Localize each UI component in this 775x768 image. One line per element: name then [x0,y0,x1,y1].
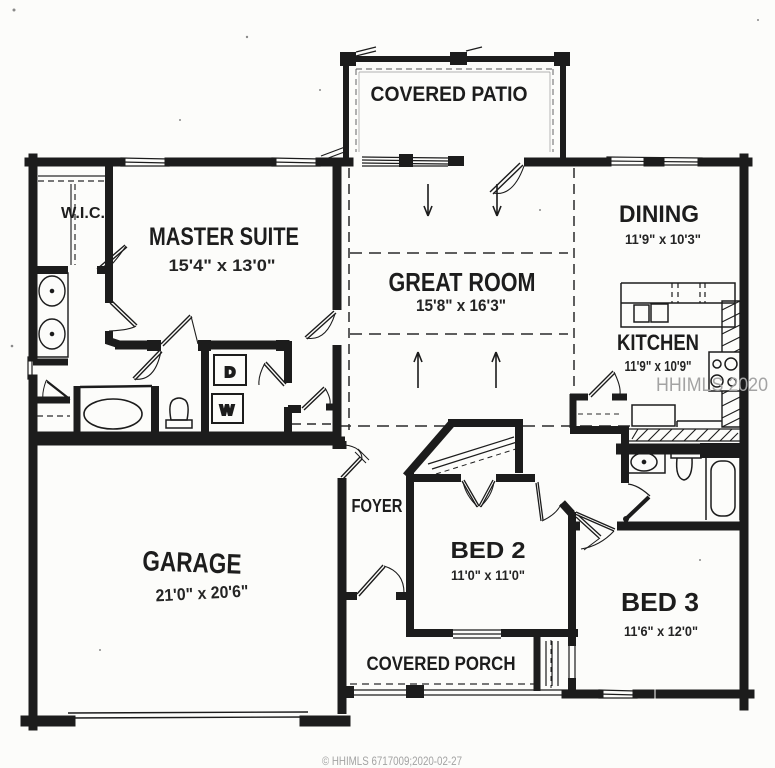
svg-text:FOYER: FOYER [352,496,403,516]
svg-text:BED 2: BED 2 [451,537,526,563]
svg-text:11'6" x 12'0": 11'6" x 12'0" [624,623,698,639]
svg-text:MASTER SUITE: MASTER SUITE [149,223,299,251]
svg-text:15'4" x 13'0": 15'4" x 13'0" [169,256,276,275]
svg-text:HHIMLS 2020: HHIMLS 2020 [656,375,768,396]
svg-text:KITCHEN: KITCHEN [617,330,699,355]
svg-text:DINING: DINING [619,201,699,228]
svg-text:W.I.C.: W.I.C. [61,205,105,222]
svg-text:W: W [220,402,235,419]
svg-text:© HHIMLS 6717009;2020-02-27: © HHIMLS 6717009;2020-02-27 [322,754,462,768]
svg-text:BED 3: BED 3 [621,587,699,617]
svg-text:GREAT ROOM: GREAT ROOM [389,267,536,297]
svg-text:11'0" x 11'0": 11'0" x 11'0" [451,567,525,583]
svg-text:COVERED PORCH: COVERED PORCH [367,654,516,675]
svg-text:11'9" x 10'3": 11'9" x 10'3" [625,231,701,247]
svg-text:GARAGE: GARAGE [142,545,242,579]
svg-text:COVERED PATIO: COVERED PATIO [371,83,528,106]
svg-text:D: D [225,364,236,381]
svg-text:11'9" x 10'9": 11'9" x 10'9" [625,358,692,375]
svg-text:15'8" x 16'3": 15'8" x 16'3" [416,296,506,315]
